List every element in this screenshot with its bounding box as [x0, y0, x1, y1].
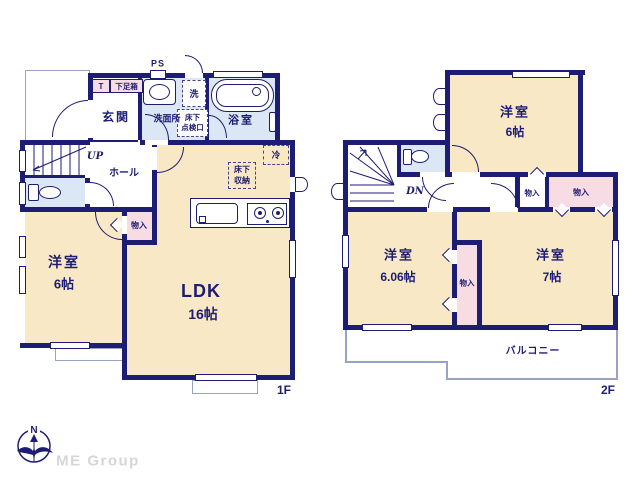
window: [195, 374, 257, 381]
casement-window-icon: [433, 88, 446, 105]
burner-dot: [258, 211, 262, 215]
wall-segment: [578, 70, 583, 177]
bathtub-inner-icon: [216, 84, 269, 107]
casement-window-icon: [295, 177, 308, 192]
porch-outline: [192, 380, 258, 394]
window: [289, 240, 296, 278]
label-bedroom-1f: 洋室: [48, 255, 80, 269]
underfloor-inspection-hatch: 床下 点検口: [177, 109, 208, 137]
window: [50, 342, 90, 349]
stairs-down-icon: [348, 145, 397, 207]
door-opening: [452, 172, 480, 177]
label-laundry: 洗: [189, 87, 198, 100]
outline-line: [345, 330, 347, 361]
label-closet-1f: 物入: [131, 222, 147, 230]
shoe-box: 下足箱: [110, 79, 143, 93]
compass-icon: N: [12, 422, 58, 470]
casement-window-icon: [433, 114, 446, 131]
underfloor-storage: 床下 収納: [228, 162, 256, 189]
room-fill: [348, 212, 452, 325]
toilet-compartment-box: T: [92, 79, 110, 93]
label-bedroom-b-size: 6.06帖: [380, 271, 415, 283]
label-inspection-1: 床下: [185, 113, 200, 123]
burner-dot: [276, 211, 280, 215]
wall-segment: [343, 212, 348, 330]
window: [342, 235, 349, 268]
door-opening: [185, 73, 203, 78]
brand-watermark: ME Group: [56, 454, 140, 469]
window: [19, 266, 26, 294]
label-bedroom-1f-size: 6帖: [54, 278, 74, 291]
wall-segment: [545, 177, 549, 207]
label-storage-1: 床下: [234, 165, 250, 175]
window: [150, 70, 166, 79]
window: [19, 182, 26, 205]
label-ldk: LDK: [181, 282, 221, 300]
kitchen-faucet-icon: [199, 216, 206, 223]
label-inspection-2: 点検口: [181, 123, 204, 133]
label-floor-1f: 1F: [277, 384, 291, 396]
wall-segment: [122, 240, 157, 245]
wall-segment: [152, 212, 157, 240]
label-bedroom-b: 洋室: [384, 249, 414, 262]
label-floor-2f: 2F: [601, 384, 615, 396]
label-hall: ホール: [109, 169, 139, 179]
refrigerator-space: 冷: [263, 145, 289, 165]
label-ldk-size: 16帖: [188, 307, 218, 321]
label-shoe-box: 下足箱: [115, 81, 138, 92]
label-t: T: [99, 82, 104, 91]
label-bathroom: 浴室: [228, 116, 254, 127]
stairs-up-icon: [25, 145, 88, 175]
label-bedroom-a-size: 6帖: [506, 126, 525, 138]
compass-north-label: N: [30, 425, 37, 436]
porch-outline: [55, 348, 125, 361]
toilet-tank-icon: [28, 184, 39, 201]
outline-line: [616, 330, 618, 380]
laundry-space: 洗: [182, 80, 206, 107]
wall-segment: [25, 175, 85, 178]
floor-plan: PS T 下足箱 玄関 洗面所 洗 床下 点検口 浴室 UP ホール 物入 洋室…: [0, 0, 640, 480]
label-refrigerator: 冷: [272, 149, 281, 161]
wall-segment: [397, 143, 401, 175]
door-swing-arc: [185, 55, 203, 73]
label-bedroom-c: 洋室: [536, 249, 566, 262]
label-washroom: 洗面所: [153, 115, 180, 124]
door-opening: [145, 140, 168, 145]
label-bedroom-c-size: 7帖: [543, 271, 562, 283]
label-dn: DN: [406, 187, 424, 197]
window: [548, 324, 582, 331]
label-closet-c: 物入: [460, 279, 475, 287]
toilet-icon: [39, 186, 61, 199]
label-ps: PS: [151, 60, 165, 69]
wall-segment: [20, 207, 157, 212]
outline-line: [345, 361, 448, 363]
label-closet-b: 物入: [573, 189, 589, 197]
window: [512, 71, 570, 78]
wall-segment: [90, 140, 138, 142]
window: [612, 240, 619, 296]
bath-counter-icon: [269, 112, 276, 132]
door-swing-arc: [491, 183, 518, 208]
label-bedroom-a: 洋室: [500, 106, 530, 119]
bathtub-drain-icon: [252, 87, 261, 96]
window: [213, 71, 263, 78]
outline-line: [446, 378, 618, 380]
wall-segment: [477, 245, 482, 325]
burner-dot: [266, 220, 269, 223]
door-opening: [88, 100, 93, 138]
label-closet-a: 物入: [525, 189, 540, 197]
label-up: UP: [87, 152, 103, 162]
window: [19, 236, 26, 258]
label-storage-2: 収納: [234, 176, 250, 186]
wall-segment: [122, 245, 127, 348]
wall-segment: [343, 207, 618, 212]
casement-window-icon: [331, 183, 344, 200]
toilet-icon: [411, 150, 429, 163]
label-balcony: バルコニー: [506, 347, 561, 357]
label-entrance: 玄関: [102, 111, 130, 123]
sink-basin-icon: [149, 84, 170, 100]
window: [362, 324, 412, 331]
